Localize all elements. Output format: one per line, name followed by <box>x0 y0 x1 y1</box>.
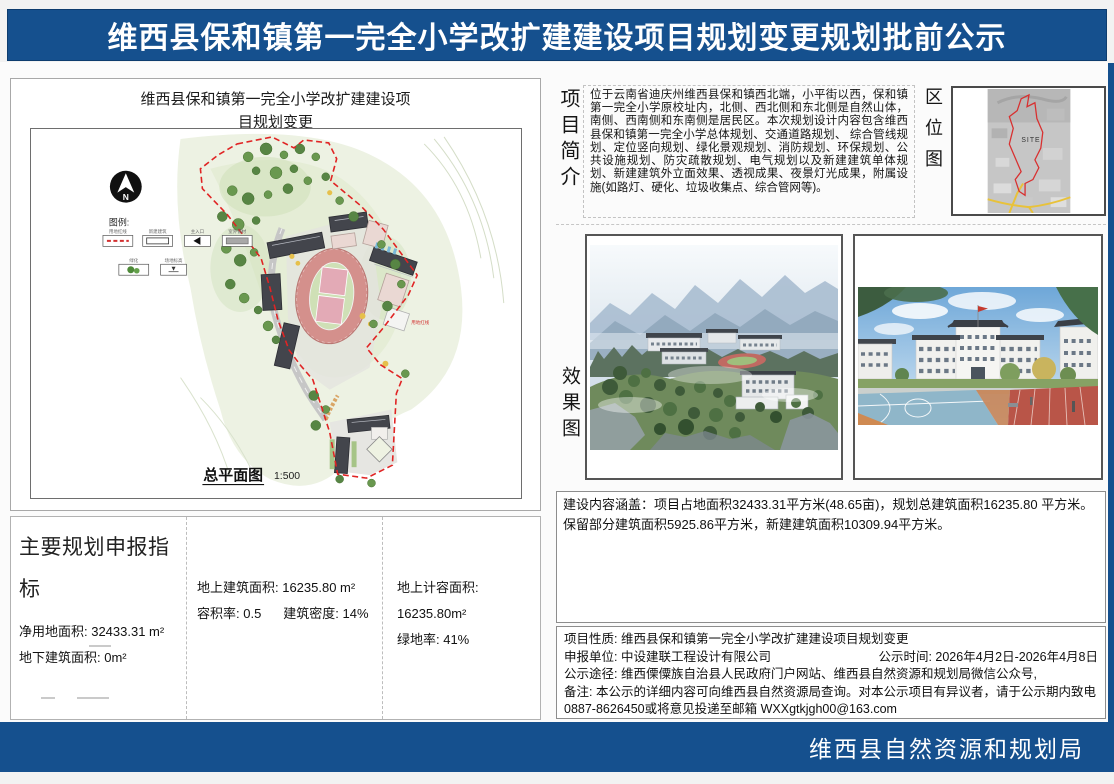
site-label: SITE <box>1021 137 1040 144</box>
indicators-title: 主要规划申报指标 <box>19 527 178 611</box>
right-edge-strip <box>1108 63 1114 722</box>
header-banner: 维西县保和镇第一完全小学改扩建建设项目规划变更规划批前公示 <box>7 9 1107 61</box>
project-intro-label: 项目简介 <box>556 85 583 192</box>
density-value: 建筑密度: 14% <box>283 606 368 621</box>
faint-mark <box>77 697 109 699</box>
faint-mark <box>41 697 55 699</box>
above-ground-area: 地上建筑面积: 16235.80 m² <box>197 575 374 601</box>
renderings-label: 效果图 <box>557 366 583 444</box>
svg-text:N: N <box>123 192 129 202</box>
boundary-annotation: 用地红线 <box>411 319 429 326</box>
publicity-channels: 公示途径: 维西傈僳族自治县人民政府门户网站、维西县自然资源和规划局微信公众号, <box>564 666 1098 684</box>
faint-mark <box>89 645 111 647</box>
legend-label-elevation: 场地标高 <box>165 257 183 264</box>
site-plan-frame: 用地红线 N 图例: 用地红线 新建建筑 主入口 室外铺材 <box>30 128 522 499</box>
agency-name: 维西县自然资源和规划局 <box>809 730 1084 764</box>
rendering-courtyard-view <box>858 287 1098 425</box>
page-title: 维西县保和镇第一完全小学改扩建建设项目规划变更规划批前公示 <box>108 13 1007 57</box>
net-land-area: 净用地面积: 32433.31 m² <box>19 619 178 645</box>
remark: 备注: 本公示的详细内容可向维西县自然资源局查询。对本公示项目有异议者，请于公示… <box>564 684 1098 719</box>
legend-label-entrance: 主入口 <box>191 228 204 234</box>
rendering-aerial-view <box>590 245 838 450</box>
footer-banner: 维西县自然资源和规划局 <box>0 722 1114 772</box>
indicators-col-3: 地上计容面积: 16235.80m² 绿地率: 41% <box>383 517 540 719</box>
indicators-col-1: 主要规划申报指标 净用地面积: 32433.31 m² 地下建筑面积: 0m² <box>11 517 187 719</box>
rendering-courtyard-frame <box>853 234 1103 480</box>
north-arrow-icon: N <box>110 171 142 203</box>
far-value: 容积率: 0.5 <box>197 606 261 621</box>
site-plan-title: 维西县保和镇第一完全小学改扩建建设项 目规划变更 <box>11 79 540 135</box>
project-nature: 项目性质: 维西县保和镇第一完全小学改扩建建设项目规划变更 <box>564 631 1098 649</box>
indicators-panel: 主要规划申报指标 净用地面积: 32433.31 m² 地下建筑面积: 0m² … <box>10 516 541 720</box>
legend-label-greening: 绿化 <box>129 257 138 264</box>
plan-scale: 1:500 <box>274 471 300 482</box>
site-plan-drawing: 用地红线 N 图例: 用地红线 新建建筑 主入口 室外铺材 <box>31 129 521 498</box>
publicity-time: 公示时间: 2026年4月2日-2026年4月8日 <box>878 649 1098 667</box>
green-ratio: 绿地率: 41% <box>397 627 532 653</box>
countable-area: 地上计容面积: 16235.80m² <box>397 575 532 627</box>
project-intro-text: 位于云南省迪庆州维西县保和镇西北端，小平街以西，保和镇第一完全小学原校址内，北侧… <box>583 85 915 218</box>
legend-label-paving: 室外铺材 <box>228 228 246 235</box>
far-and-density: 容积率: 0.5建筑密度: 14% <box>197 601 374 627</box>
notice-info-box: 项目性质: 维西县保和镇第一完全小学改扩建建设项目规划变更 申报单位: 中设建联… <box>556 626 1106 719</box>
location-map-frame: SITE <box>951 86 1106 216</box>
section-divider <box>556 224 1106 225</box>
legend-title: 图例: <box>109 216 129 227</box>
construction-summary-box: 建设内容涵盖：项目占地面积32433.31平方米(48.65亩)，规划总建筑面积… <box>556 491 1106 623</box>
construction-summary-text: 建设内容涵盖：项目占地面积32433.31平方米(48.65亩)，规划总建筑面积… <box>563 497 1093 532</box>
applicant-time-line: 申报单位: 中设建联工程设计有限公司 公示时间: 2026年4月2日-2026年… <box>564 649 1098 667</box>
plan-caption: 总平面图 <box>203 466 263 484</box>
legend-label-redline: 用地红线 <box>109 228 127 235</box>
indicators-col-2: 地上建筑面积: 16235.80 m² 容积率: 0.5建筑密度: 14% <box>187 517 383 719</box>
location-satellite-map: SITE <box>987 89 1071 213</box>
rendering-aerial-frame <box>585 234 843 480</box>
project-intro-row: 项目简介 位于云南省迪庆州维西县保和镇西北端，小平街以西，保和镇第一完全小学原校… <box>556 85 1106 218</box>
site-plan-panel: 维西县保和镇第一完全小学改扩建建设项 目规划变更 <box>10 78 541 511</box>
legend-label-newbuilding: 新建建筑 <box>149 228 167 235</box>
location-map-label: 区位图 <box>922 87 946 180</box>
applicant: 申报单位: 中设建联工程设计有限公司 <box>564 649 771 667</box>
underground-area: 地下建筑面积: 0m² <box>19 645 178 671</box>
